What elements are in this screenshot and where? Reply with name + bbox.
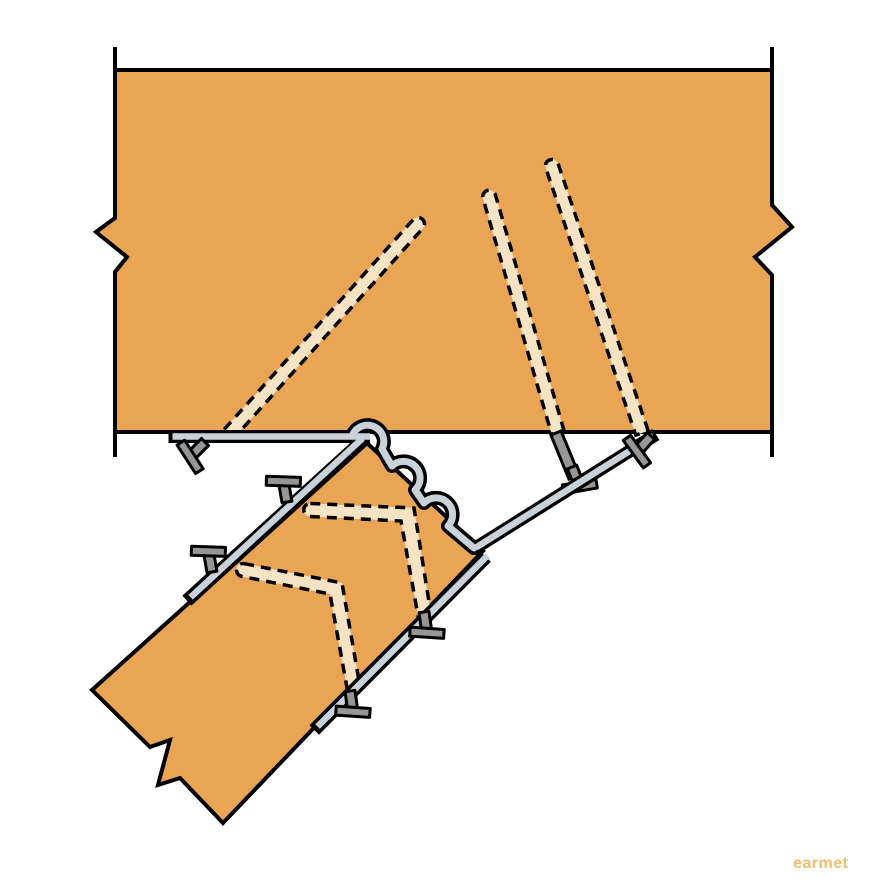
illustration-page: earmet (0, 0, 880, 880)
header-beam-body (96, 70, 792, 432)
watermark-text: earmet (793, 855, 848, 873)
header-beam (96, 47, 792, 457)
joist-hanger-diagram (0, 0, 880, 880)
